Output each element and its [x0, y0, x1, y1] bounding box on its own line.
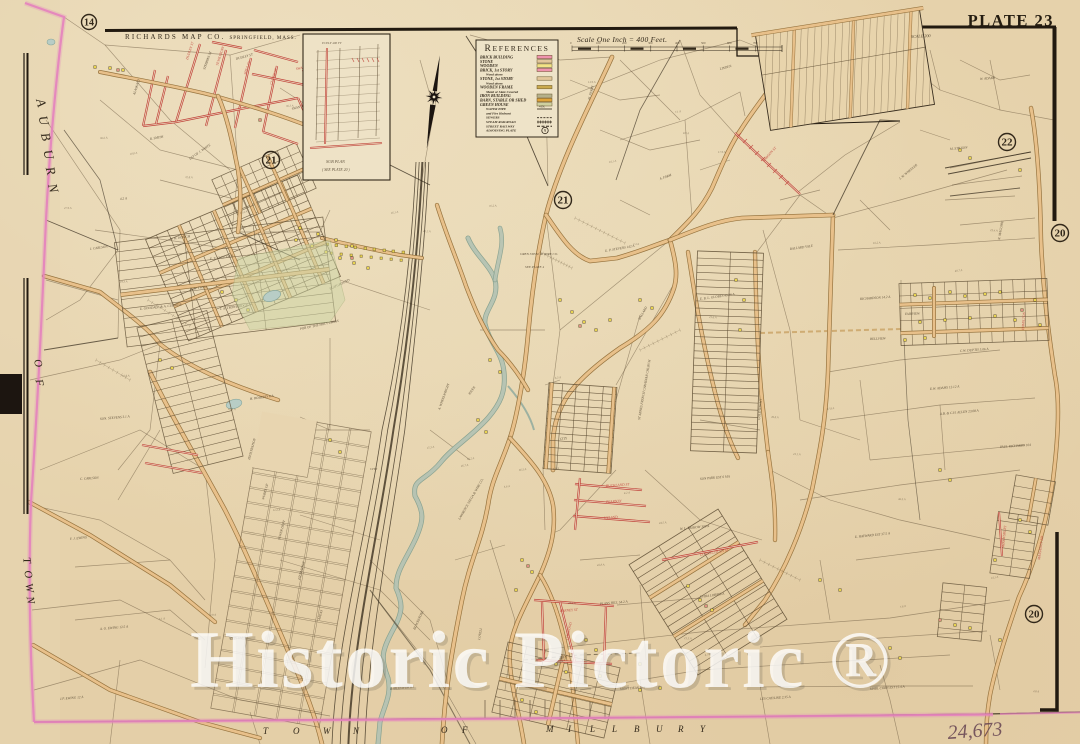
svg-text:22: 22	[1002, 137, 1014, 149]
svg-text:700: 700	[753, 41, 758, 45]
svg-text:20: 20	[1055, 228, 1067, 240]
svg-text:14.9 A: 14.9 A	[588, 80, 596, 84]
svg-text:N: N	[352, 726, 360, 736]
svg-text:24.5 A: 24.5 A	[659, 520, 667, 525]
svg-text:32.8 A: 32.8 A	[185, 175, 193, 179]
svg-text:L: L	[589, 724, 595, 734]
svg-text:CITY: CITY	[370, 467, 378, 471]
svg-text:23.1 A: 23.1 A	[793, 452, 801, 456]
svg-text:M: M	[545, 724, 554, 734]
svg-text:4 IN.: 4 IN.	[539, 105, 545, 109]
svg-text:4.2 A: 4.2 A	[624, 490, 631, 495]
svg-text:16.2 A: 16.2 A	[873, 241, 881, 245]
svg-text:28.6 A: 28.6 A	[568, 601, 576, 605]
svg-text:36.3 A: 36.3 A	[286, 104, 294, 108]
svg-text:4.2 A: 4.2 A	[120, 196, 128, 201]
svg-text:O: O	[441, 725, 448, 735]
svg-text:4.8 A: 4.8 A	[1033, 689, 1040, 694]
svg-text:PLATE 23: PLATE 23	[968, 11, 1054, 30]
svg-text:24,673: 24,673	[947, 718, 1003, 744]
svg-text:R: R	[677, 724, 684, 734]
svg-text:8.9 A: 8.9 A	[683, 131, 689, 135]
svg-text:11.2 A: 11.2 A	[273, 508, 281, 512]
svg-text:ADJOINING PLATE: ADJOINING PLATE	[485, 129, 517, 133]
svg-text:40.2 A: 40.2 A	[423, 229, 431, 233]
svg-text:23.4 A: 23.4 A	[990, 228, 998, 233]
svg-text:200: 200	[622, 41, 627, 45]
svg-text:21: 21	[558, 195, 569, 207]
svg-text:35.2 A: 35.2 A	[489, 204, 497, 208]
svg-text:7.4 A: 7.4 A	[633, 242, 639, 246]
svg-text:37.8 A: 37.8 A	[122, 374, 130, 378]
svg-text:FAIRVIEW: FAIRVIEW	[904, 311, 921, 316]
svg-text:400: 400	[675, 41, 680, 45]
svg-text:BRICK, 1st STORY: BRICK, 1st STORY	[479, 67, 513, 72]
svg-text:ECELY 400 FT: ECELY 400 FT	[321, 41, 342, 45]
svg-text:F: F	[461, 725, 468, 735]
svg-text:19.3 A: 19.3 A	[120, 279, 128, 284]
svg-text:36.5 A: 36.5 A	[898, 497, 906, 501]
svg-text:14: 14	[84, 17, 94, 28]
svg-text:300: 300	[648, 41, 653, 45]
svg-text:21: 21	[266, 155, 277, 167]
svg-text:WOODEN FRAME: WOODEN FRAME	[480, 85, 513, 90]
svg-text:REFERENCES: REFERENCES	[485, 44, 550, 54]
svg-text:27.9 A: 27.9 A	[64, 206, 72, 210]
svg-text:L: L	[611, 724, 617, 734]
svg-text:O: O	[293, 726, 300, 736]
svg-text:SUB PLAN: SUB PLAN	[326, 159, 345, 164]
svg-text:U: U	[656, 724, 663, 734]
svg-text:20: 20	[1029, 609, 1041, 621]
svg-text:100: 100	[596, 41, 601, 45]
svg-text:22.8 A: 22.8 A	[597, 563, 605, 567]
svg-text:500: 500	[701, 41, 706, 45]
svg-text:STONE, 1st STORY: STONE, 1st STORY	[480, 76, 514, 81]
svg-text:600: 600	[727, 41, 732, 45]
svg-text:39.8 A: 39.8 A	[771, 415, 779, 419]
svg-text:5.1 A: 5.1 A	[159, 616, 166, 621]
svg-text:BELLVIEW: BELLVIEW	[870, 336, 887, 341]
svg-text:SEE PLATE 4: SEE PLATE 4	[525, 265, 544, 269]
svg-text:GREEN HOUSE: GREEN HOUSE	[480, 102, 509, 107]
svg-text:17.9 A: 17.9 A	[718, 150, 726, 154]
svg-text:Historic Pictoric ®: Historic Pictoric ®	[190, 614, 890, 705]
svg-text:10.8 A: 10.8 A	[228, 407, 236, 411]
svg-text:B: B	[634, 724, 640, 734]
svg-text:36.6 A: 36.6 A	[100, 136, 108, 140]
svg-text:OREN STEEL & WIRE CO.: OREN STEEL & WIRE CO.	[520, 252, 558, 256]
svg-text:( SEE PLATE 20 ): ( SEE PLATE 20 )	[322, 168, 350, 172]
svg-text:23.6 A: 23.6 A	[709, 315, 717, 319]
